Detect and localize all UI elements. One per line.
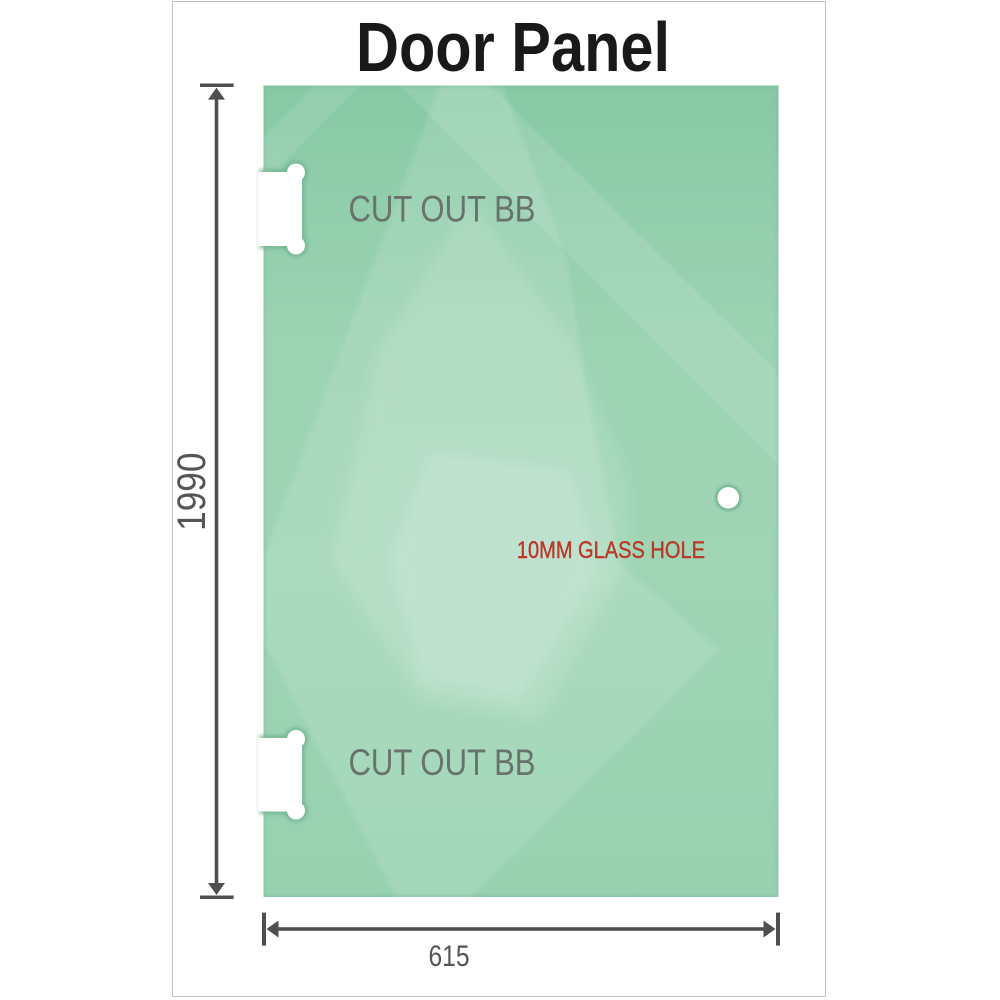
svg-text:10MM GLASS HOLE: 10MM GLASS HOLE bbox=[517, 536, 705, 563]
svg-text:615: 615 bbox=[428, 939, 469, 973]
svg-text:CUT OUT BB: CUT OUT BB bbox=[349, 743, 536, 784]
svg-text:1990: 1990 bbox=[169, 453, 214, 531]
svg-text:CUT OUT BB: CUT OUT BB bbox=[349, 189, 536, 230]
svg-text:Door Panel: Door Panel bbox=[356, 7, 670, 86]
